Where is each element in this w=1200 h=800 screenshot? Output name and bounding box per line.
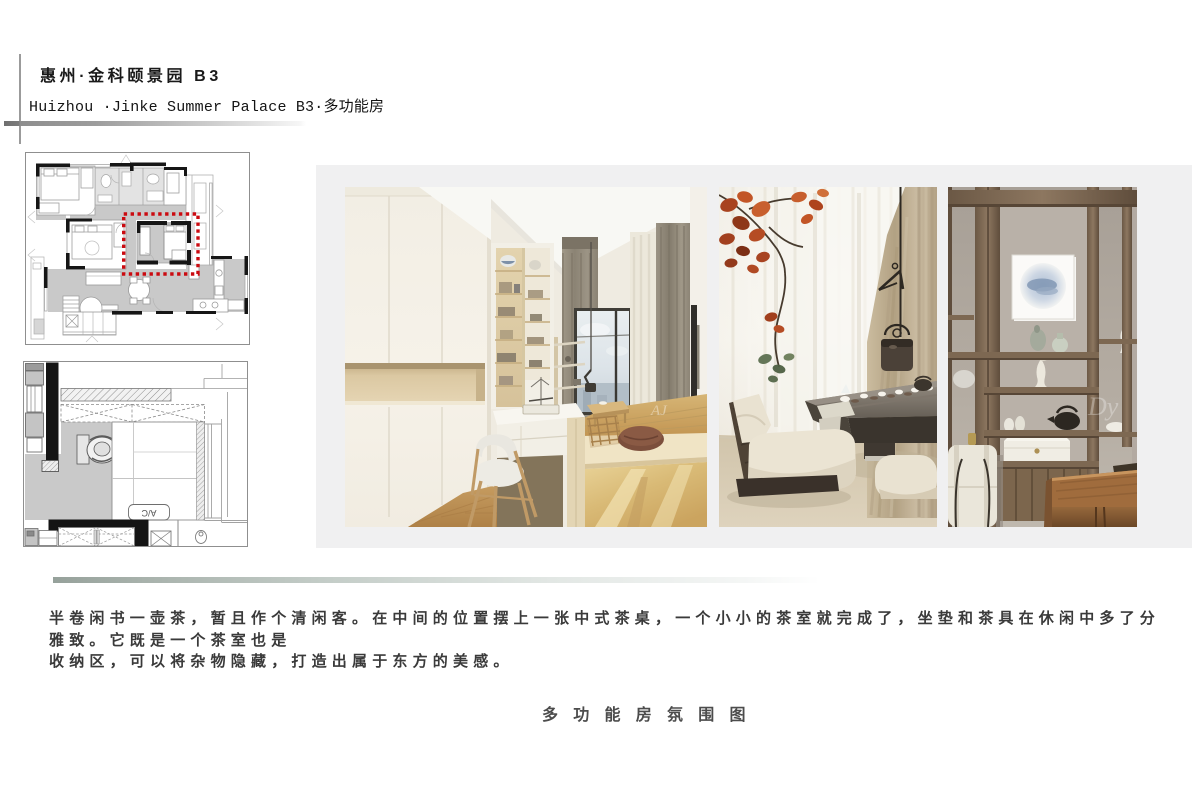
svg-text:A/C: A/C [141,508,157,518]
svg-text:Dy: Dy [1087,392,1119,421]
svg-text:AJ: AJ [650,403,668,419]
